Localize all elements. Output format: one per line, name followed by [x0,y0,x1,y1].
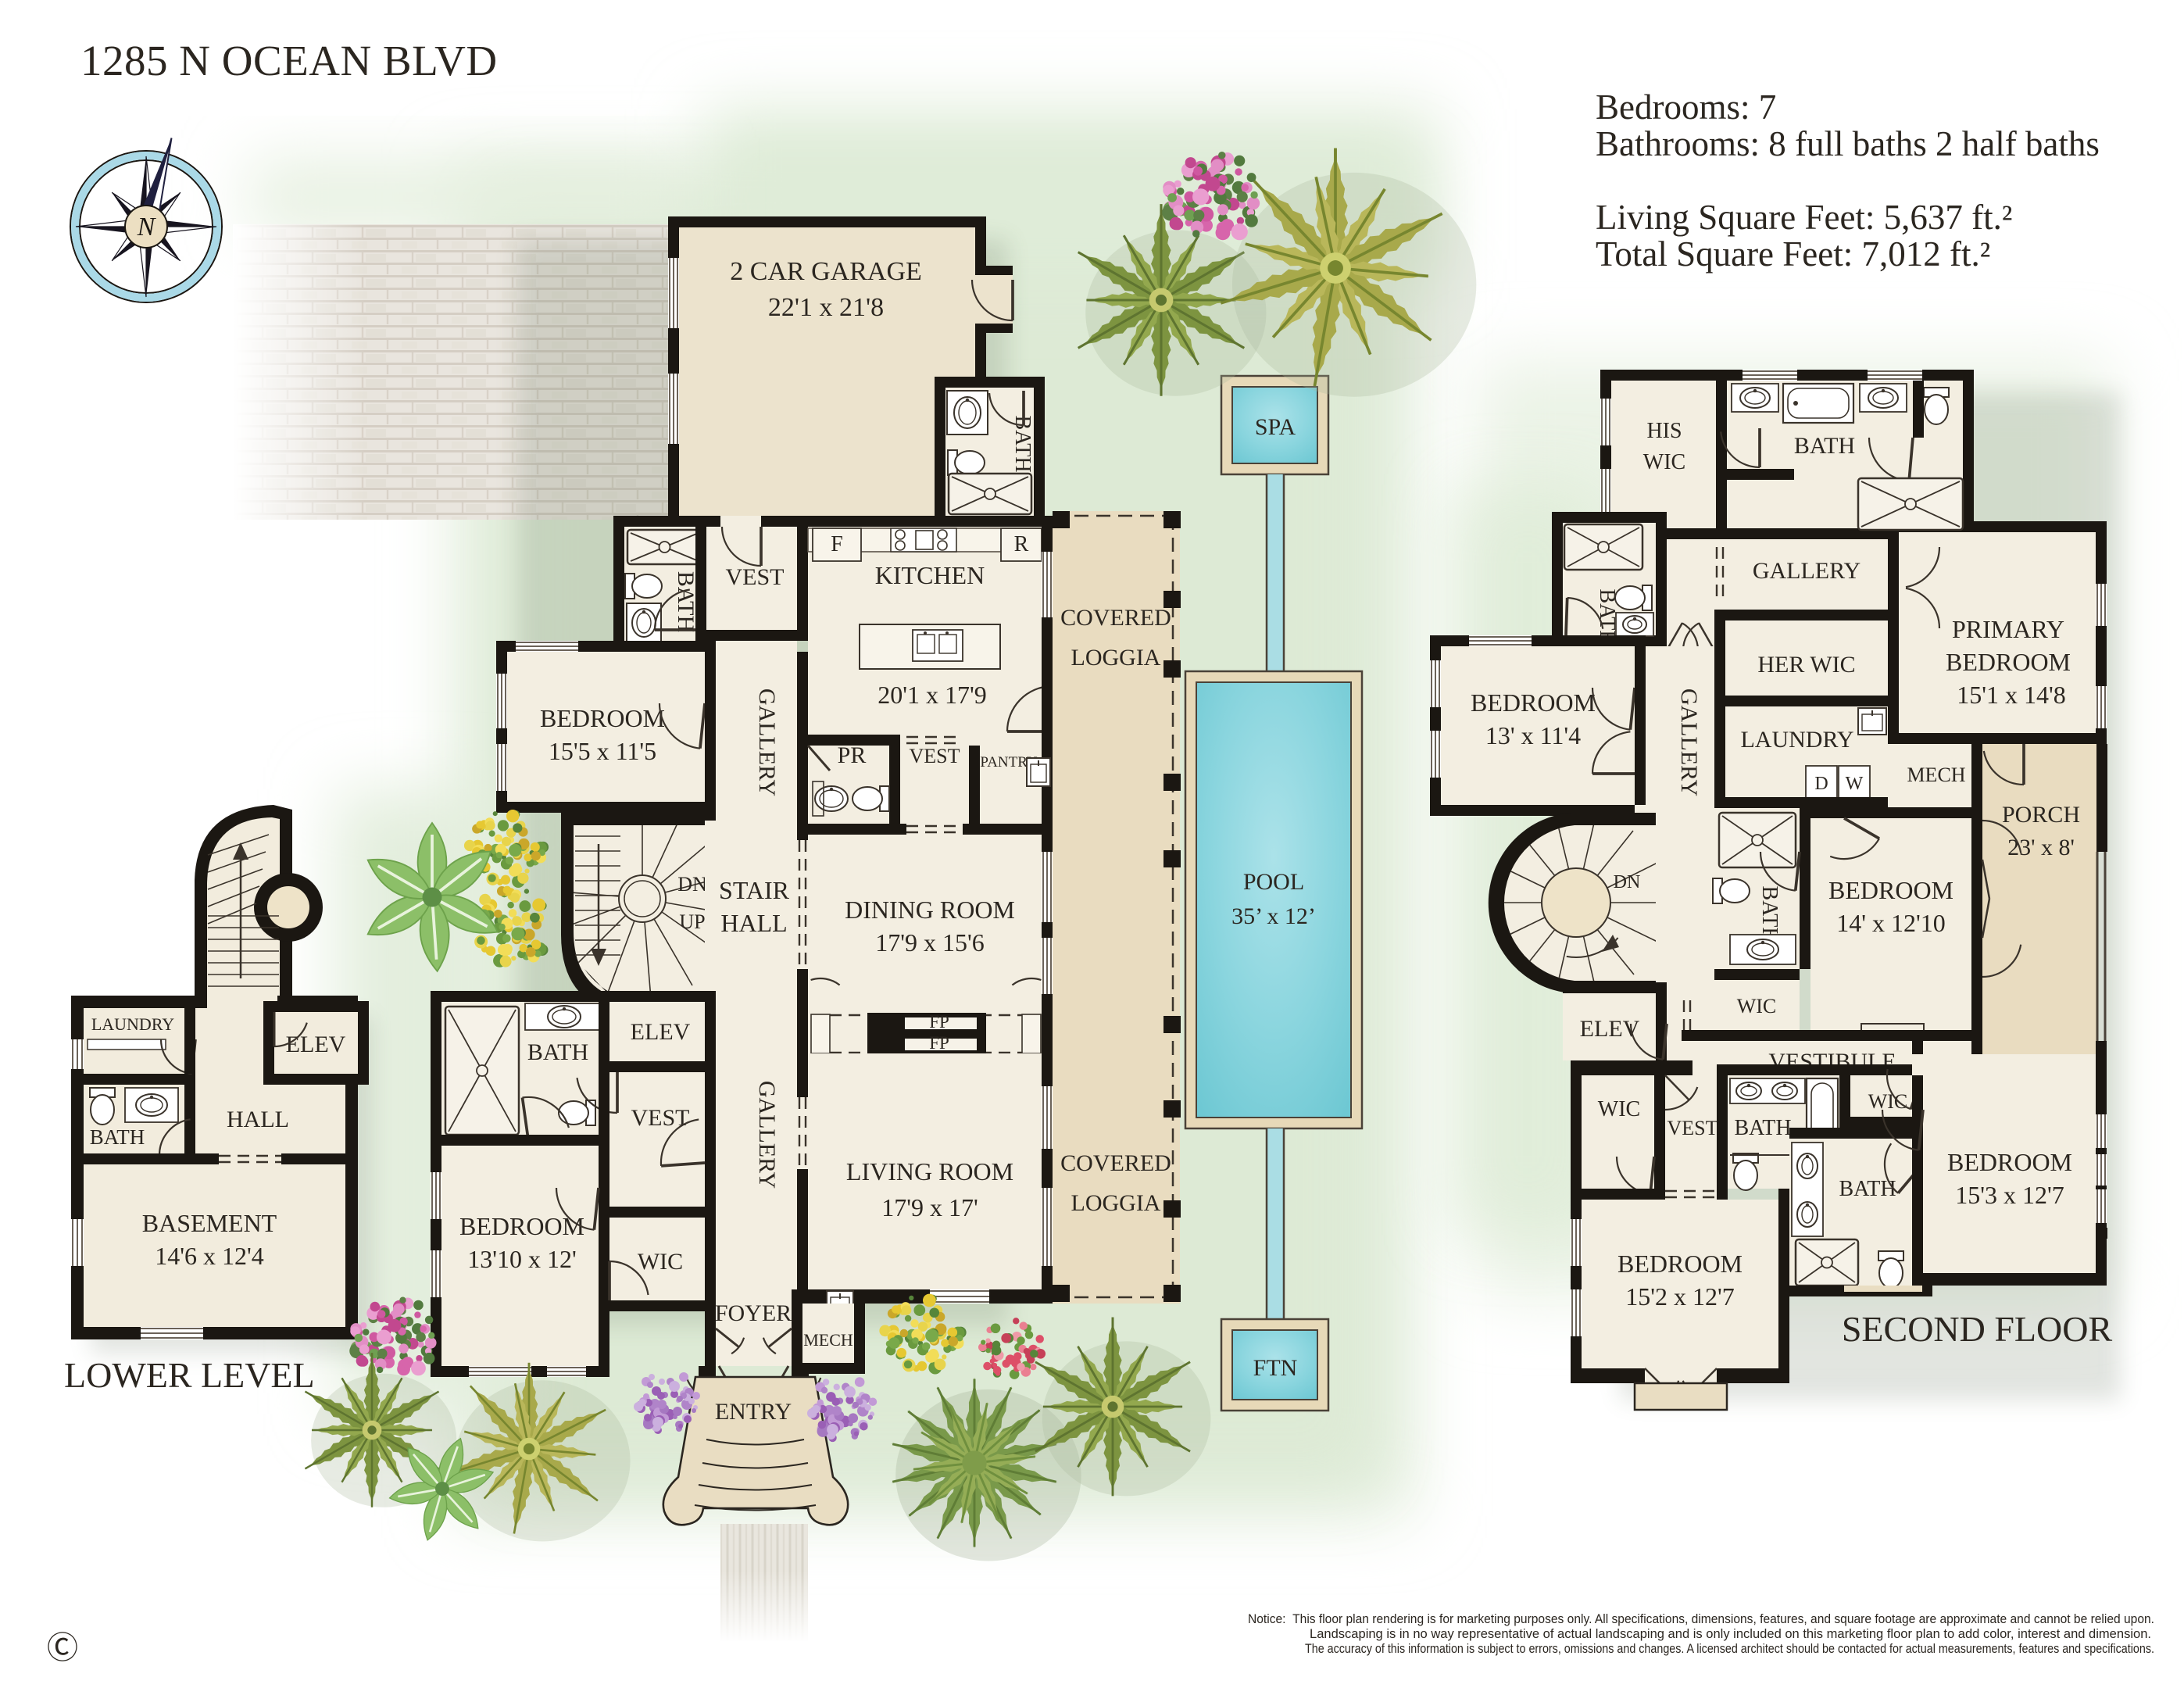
svg-text:15'5 x 11'5: 15'5 x 11'5 [549,737,656,765]
svg-text:Ⓒ: Ⓒ [47,1631,78,1665]
svg-text:BEDROOM: BEDROOM [1946,648,2071,676]
svg-text:GALLERY: GALLERY [1753,558,1861,584]
svg-text:Bathrooms: 8 full baths 2 half: Bathrooms: 8 full baths 2 half baths [1596,124,2100,163]
svg-text:MECH: MECH [803,1330,853,1350]
svg-text:FP: FP [929,1033,949,1053]
svg-text:15'3 x 12'7: 15'3 x 12'7 [1955,1181,2064,1209]
svg-text:BATH: BATH [673,571,699,632]
svg-text:LOGGIA: LOGGIA [1071,1190,1161,1216]
svg-text:BATH: BATH [90,1125,145,1149]
svg-text:17'9 x 17': 17'9 x 17' [881,1193,978,1221]
svg-text:UP: UP [679,910,705,933]
svg-text:MECH: MECH [1907,764,1965,786]
svg-text:WIC: WIC [1598,1097,1640,1121]
svg-text:Living Square Feet: 5,637 ft.²: Living Square Feet: 5,637 ft.² [1596,198,2012,237]
svg-text:FOYER: FOYER [715,1300,792,1326]
svg-text:FP: FP [929,1012,949,1032]
svg-text:Bedrooms: 7: Bedrooms: 7 [1596,88,1776,127]
svg-text:The accuracy of this informati: The accuracy of this information is subj… [1305,1642,2154,1656]
svg-text:BATH: BATH [1794,433,1855,459]
svg-text:2 CAR GARAGE: 2 CAR GARAGE [730,257,922,286]
svg-text:SPA: SPA [1255,414,1296,440]
svg-text:POOL: POOL [1243,869,1304,895]
svg-text:BEDROOM: BEDROOM [540,704,665,732]
svg-text:BATH: BATH [1734,1116,1791,1140]
svg-text:HALL: HALL [227,1107,289,1132]
svg-text:Landscaping is in no way repre: Landscaping is in no way representative … [1310,1627,2151,1641]
svg-text:DN: DN [677,873,707,896]
svg-text:22'1 x 21'8: 22'1 x 21'8 [768,293,884,322]
svg-text:23' x 8': 23' x 8' [2007,835,2075,860]
svg-text:DINING ROOM: DINING ROOM [845,896,1015,924]
svg-text:LAUNDRY: LAUNDRY [91,1014,174,1034]
svg-text:STAIR: STAIR [719,876,790,904]
svg-text:SECOND FLOOR: SECOND FLOOR [1842,1309,2113,1349]
svg-text:LIVING ROOM: LIVING ROOM [846,1157,1013,1186]
svg-text:PORCH: PORCH [2002,802,2080,828]
svg-text:BASEMENT: BASEMENT [142,1209,277,1237]
svg-text:N: N [137,213,157,241]
svg-text:R: R [1014,532,1029,556]
svg-text:GALLERY: GALLERY [1676,688,1702,796]
svg-text:1285 N OCEAN BLVD: 1285 N OCEAN BLVD [80,37,498,84]
svg-text:HER WIC: HER WIC [1757,652,1855,678]
svg-text:HALL: HALL [720,909,787,937]
svg-text:LOGGIA: LOGGIA [1071,645,1161,671]
svg-text:D: D [1814,774,1828,794]
svg-text:BEDROOM: BEDROOM [1947,1148,2072,1176]
svg-text:VEST: VEST [726,564,785,590]
svg-text:14'6 x 12'4: 14'6 x 12'4 [155,1242,264,1270]
svg-text:HIS: HIS [1646,419,1682,443]
svg-text:F: F [831,532,843,556]
svg-text:17'9 x 15'6: 17'9 x 15'6 [875,928,985,957]
svg-text:PRIMARY: PRIMARY [1952,615,2064,643]
svg-text:DN: DN [1614,872,1641,892]
svg-text:BEDROOM: BEDROOM [459,1212,584,1240]
svg-text:LAUNDRY: LAUNDRY [1740,727,1853,753]
svg-text:WIC: WIC [1737,995,1777,1017]
svg-text:35’ x 12’: 35’ x 12’ [1231,903,1316,929]
svg-text:WIC: WIC [1643,450,1685,474]
svg-text:W: W [1846,774,1864,794]
svg-text:WIC: WIC [1868,1090,1908,1113]
svg-text:BATH: BATH [527,1039,588,1065]
svg-text:BEDROOM: BEDROOM [1471,688,1596,717]
svg-text:Notice: This floor plan rende: Notice: This floor plan rendering is for… [1248,1612,2154,1626]
svg-text:15'2 x 12'7: 15'2 x 12'7 [1625,1282,1735,1311]
svg-text:GALLERY: GALLERY [754,1081,780,1189]
svg-text:VEST: VEST [910,745,960,767]
svg-text:LOWER LEVEL: LOWER LEVEL [64,1355,315,1395]
svg-text:13'10 x 12': 13'10 x 12' [467,1245,577,1273]
svg-text:15'1 x 14'8: 15'1 x 14'8 [1957,681,2066,709]
svg-text:FTN: FTN [1253,1355,1298,1381]
svg-text:PR: PR [838,742,867,768]
svg-text:BEDROOM: BEDROOM [1617,1250,1743,1278]
svg-text:COVERED: COVERED [1060,605,1171,631]
svg-text:Total Square Feet: 7,012 ft.²: Total Square Feet: 7,012 ft.² [1596,234,1990,274]
svg-text:COVERED: COVERED [1060,1150,1171,1176]
svg-text:WIC: WIC [638,1249,683,1275]
svg-text:14' x 12'10: 14' x 12'10 [1836,909,1946,937]
svg-text:20'1 x 17'9: 20'1 x 17'9 [878,681,987,709]
svg-text:VEST: VEST [1667,1117,1718,1139]
svg-text:ELEV: ELEV [286,1032,346,1057]
svg-text:GALLERY: GALLERY [754,688,780,796]
svg-text:KITCHEN: KITCHEN [875,561,985,589]
svg-text:ELEV: ELEV [631,1019,691,1045]
svg-text:ENTRY: ENTRY [715,1399,792,1425]
svg-text:BEDROOM: BEDROOM [1828,876,1953,904]
svg-text:13' x 11'4: 13' x 11'4 [1485,721,1581,749]
